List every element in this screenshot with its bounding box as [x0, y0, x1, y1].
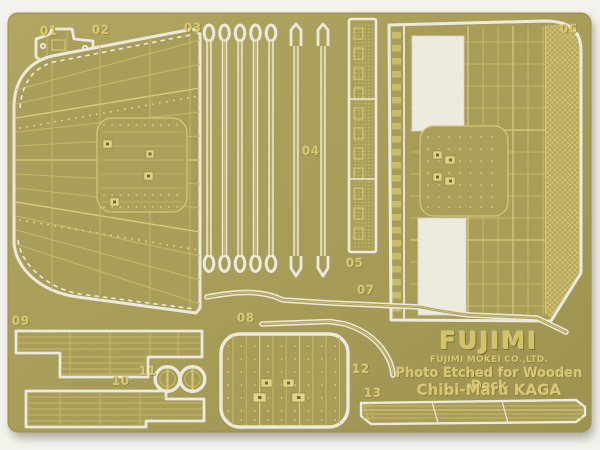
part-label-01: 01	[40, 25, 58, 37]
photo-etched-sheet-photo: 01 02 03 04 05 06 07 08 09 10 11 12 13 F…	[0, 0, 600, 450]
part-label-04: 04	[302, 145, 320, 157]
fujimi-logo: FUJIMI	[388, 329, 590, 353]
part-label-03: 03	[184, 22, 202, 34]
part-label-13: 13	[364, 387, 382, 399]
company-name: FUJIMI MOKEI CO.,LTD.	[388, 356, 590, 365]
part-label-09: 09	[12, 315, 30, 327]
part-label-02: 02	[92, 24, 110, 36]
product-title-line2: Chibi-Maru KAGA	[388, 383, 590, 398]
part-label-12: 12	[352, 363, 370, 375]
part-label-10: 10	[112, 375, 130, 387]
part-label-07: 07	[357, 284, 375, 296]
part-label-06: 06	[560, 23, 578, 35]
part-label-11: 11	[139, 365, 157, 377]
part-label-08: 08	[237, 312, 255, 324]
part-label-05: 05	[346, 257, 364, 269]
